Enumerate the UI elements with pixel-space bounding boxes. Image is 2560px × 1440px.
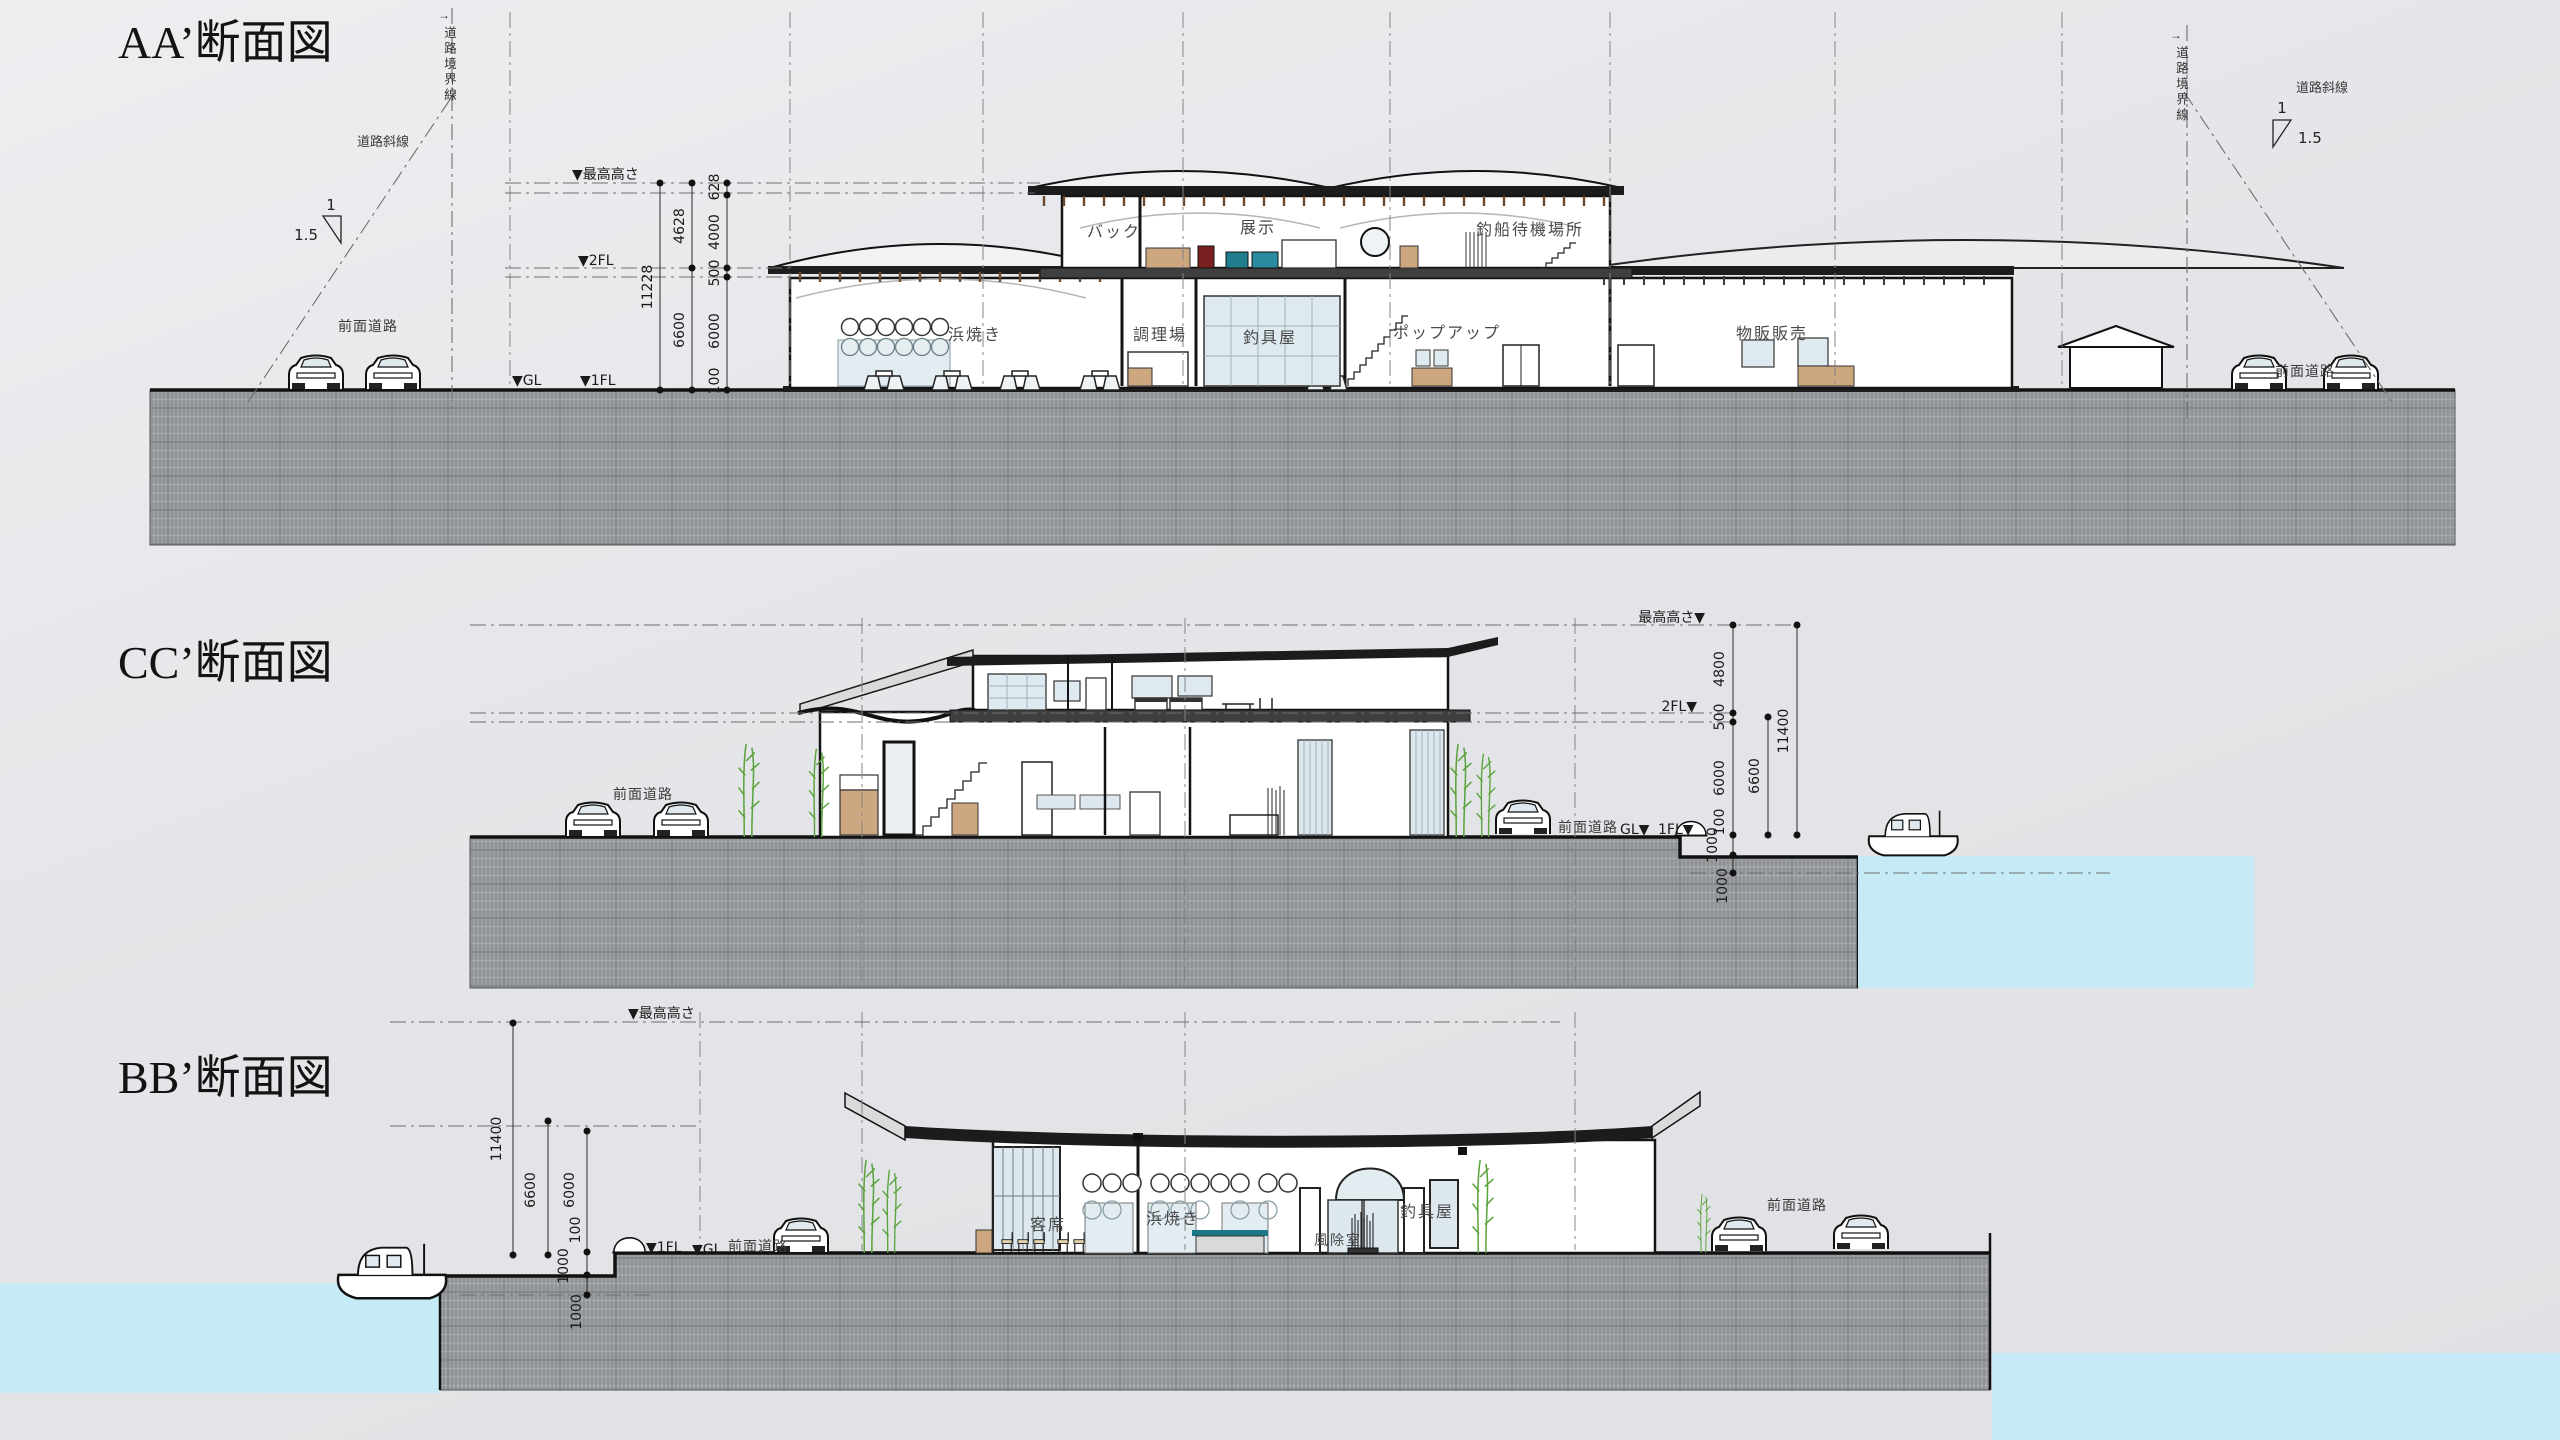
bb-kyakuseki-glazing bbox=[993, 1147, 1060, 1250]
aa-popup-window bbox=[1434, 350, 1448, 366]
aa-2fl-slab bbox=[1040, 268, 1632, 278]
aa-level-1fl: ▼1FL bbox=[580, 373, 616, 389]
tree-icon bbox=[859, 1160, 880, 1253]
aa-dim-628: 628 bbox=[707, 174, 723, 201]
aa-2f-display-case bbox=[1252, 252, 1278, 268]
bb-ground bbox=[440, 1253, 1990, 1390]
cc-road-label-right: 前面道路 bbox=[1558, 819, 1618, 836]
bb-section: 11400 6600 6000 100 1000 1000 BB’断面図 ▼最高… bbox=[0, 1005, 2560, 1440]
aa-ground bbox=[150, 390, 2455, 545]
aa-2f-red-cabinet bbox=[1198, 246, 1214, 268]
bb-roof-joint bbox=[1133, 1133, 1143, 1141]
car-icon bbox=[566, 803, 620, 837]
aa-retail-counter bbox=[1798, 366, 1854, 386]
aa-title: AA’断面図 bbox=[118, 17, 333, 68]
aa-dim-100: 100 bbox=[707, 368, 723, 395]
aa-slope-rise-right: 1 bbox=[2277, 99, 2287, 117]
tree-icon bbox=[1451, 744, 1472, 837]
aa-right-fascia bbox=[1586, 266, 2014, 275]
aa-room-chourijou: 調理場 bbox=[1133, 325, 1187, 344]
cc-dim-6600: 6600 bbox=[1747, 758, 1763, 794]
bb-roof-tip-right bbox=[1652, 1092, 1700, 1138]
bb-counter-top bbox=[1192, 1230, 1268, 1236]
cc-dim-1000a: 1000 bbox=[1705, 827, 1721, 863]
cc-title: CC’断面図 bbox=[118, 637, 333, 688]
cc-dim-1000b: 1000 bbox=[1715, 868, 1731, 904]
bb-road-label-left: 前面道路 bbox=[728, 1238, 788, 1255]
cc-ground bbox=[470, 837, 1858, 988]
aa-left-dome-roof bbox=[770, 244, 1112, 268]
aa-room-back: バック bbox=[1087, 222, 1141, 241]
aa-slope-run-left: 1.5 bbox=[294, 226, 318, 244]
tree-icon bbox=[1477, 754, 1496, 837]
aa-dim-4000: 4000 bbox=[707, 214, 723, 250]
bb-room-hamayaki: 浜焼き bbox=[1146, 1209, 1200, 1228]
bb-water-left bbox=[0, 1283, 440, 1393]
tree-icon bbox=[883, 1170, 902, 1253]
aa-retail-window bbox=[1742, 340, 1774, 367]
cc-dim-11400: 11400 bbox=[1776, 709, 1792, 754]
cc-road-label-left: 前面道路 bbox=[613, 786, 673, 803]
aa-dim-total: 11228 bbox=[640, 265, 656, 310]
cc-section: 4800 500 6000 100 1000 1000 6600 11400 C… bbox=[118, 609, 2254, 988]
aa-popup-counter bbox=[1412, 368, 1452, 386]
bb-roof-tip-left bbox=[845, 1093, 905, 1140]
boat-icon bbox=[1869, 811, 1958, 856]
bb-water-right bbox=[1992, 1353, 2560, 1440]
bb-dim-6000: 6000 bbox=[562, 1172, 578, 1208]
aa-small-hut bbox=[2058, 326, 2174, 388]
bb-dim-1000a: 1000 bbox=[556, 1248, 572, 1284]
bb-room-fujoshitsu: 風除室 bbox=[1314, 1232, 1362, 1249]
cc-dim-4800: 4800 bbox=[1712, 651, 1728, 687]
aa-dim-upper: 4628 bbox=[672, 208, 688, 244]
aa-2f-exhibit-box bbox=[1282, 240, 1336, 268]
aa-dimensions: 11228 4628 6600 628 4000 500 6000 100 bbox=[640, 174, 731, 395]
car-icon bbox=[366, 356, 420, 390]
cc-dim-6000: 6000 bbox=[1712, 760, 1728, 796]
aa-room-tenji: 展示 bbox=[1240, 218, 1276, 237]
car-icon bbox=[1834, 1216, 1888, 1250]
bb-level-1fl: ▼1FL bbox=[646, 1240, 682, 1256]
cc-dim-500: 500 bbox=[1712, 704, 1728, 731]
aa-roof-fascia bbox=[1028, 186, 1624, 195]
aa-road-label-left: 前面道路 bbox=[338, 318, 398, 335]
aa-slant-label-right: 道路斜線 bbox=[2296, 80, 2348, 96]
aa-dim-lower: 6600 bbox=[672, 312, 688, 348]
aa-right-dome-roof bbox=[1588, 240, 2344, 268]
bb-dim-6600: 6600 bbox=[523, 1172, 539, 1208]
aa-slope-run-right: 1.5 bbox=[2298, 129, 2322, 147]
aa-roof-vault-left bbox=[1030, 171, 1330, 188]
aa-popup-window bbox=[1416, 350, 1430, 366]
cc-level-2fl: 2FL▼ bbox=[1661, 699, 1697, 715]
aa-roof-vault-right bbox=[1330, 171, 1622, 188]
bb-road-label-right: 前面道路 bbox=[1767, 1197, 1827, 1214]
tree-icon bbox=[739, 744, 760, 837]
aa-level-max: ▼最高高さ bbox=[572, 166, 639, 183]
bb-room-kyakuseki: 客席 bbox=[1030, 1215, 1066, 1234]
bb-dim-100: 100 bbox=[568, 1217, 584, 1244]
aa-level-2fl: ▼2FL bbox=[578, 253, 614, 269]
section-drawing-canvas: 11228 4628 6600 628 4000 500 6000 100 AA… bbox=[0, 0, 2560, 1440]
bb-roof-joint bbox=[1458, 1147, 1467, 1155]
cc-water bbox=[1858, 856, 2254, 988]
aa-room-machiba: 釣船待機場所 bbox=[1476, 220, 1584, 239]
bb-title: BB’断面図 bbox=[118, 1052, 333, 1103]
aa-room-hamayaki: 浜焼き bbox=[948, 325, 1002, 344]
cc-2fl-slab bbox=[950, 710, 1470, 722]
dome-tent-icon bbox=[612, 1238, 646, 1253]
aa-slope-rise-left: 1 bbox=[326, 196, 336, 214]
car-icon bbox=[1496, 801, 1550, 835]
aa-2f-stair-base bbox=[1400, 246, 1418, 268]
car-icon bbox=[1712, 1218, 1766, 1252]
boat-icon bbox=[338, 1244, 446, 1298]
car-icon bbox=[654, 803, 708, 837]
aa-road-label-right: 前面道路 bbox=[2275, 363, 2335, 380]
car-icon bbox=[289, 356, 343, 390]
aa-dim-500: 500 bbox=[707, 260, 723, 287]
aa-boundary-arrow-right: → bbox=[2170, 28, 2182, 42]
cc-level-1fl: 1FL▼ bbox=[1658, 822, 1694, 838]
aa-section: 11228 4628 6600 628 4000 500 6000 100 AA… bbox=[118, 8, 2455, 545]
cc-building bbox=[798, 637, 1498, 837]
aa-slant-label-left: 道路斜線 bbox=[357, 134, 409, 150]
aa-boundary-arrow-left: → bbox=[438, 8, 450, 22]
bb-dim-11400: 11400 bbox=[489, 1117, 505, 1162]
aa-dim-6000: 6000 bbox=[707, 313, 723, 349]
aa-level-gl: ▼GL bbox=[512, 373, 542, 389]
bb-dim-1000b: 1000 bbox=[569, 1294, 585, 1330]
bb-dim-ticks bbox=[510, 1020, 591, 1299]
cc-level-gl: GL▼ bbox=[1620, 822, 1650, 838]
bb-level-max: ▼最高高さ bbox=[628, 1005, 695, 1022]
bb-tan-box bbox=[976, 1230, 992, 1253]
aa-boundary-label-left: 道路境界線 bbox=[440, 26, 459, 104]
aa-room-tsuriguya: 釣具屋 bbox=[1243, 328, 1297, 347]
bb-building bbox=[845, 1092, 1700, 1253]
tree-icon bbox=[1697, 1194, 1710, 1253]
aa-room-buppan: 物販販売 bbox=[1736, 324, 1808, 343]
cc-level-max: 最高高さ▼ bbox=[1638, 609, 1705, 626]
aa-room-popup: ポップアップ bbox=[1393, 323, 1501, 342]
bb-counter bbox=[1196, 1236, 1264, 1253]
aa-kitchen-cabinet bbox=[1128, 368, 1152, 386]
bb-level-gl: ▼GL bbox=[692, 1242, 722, 1258]
aa-boundary-label-right: 道路境界線 bbox=[2172, 46, 2191, 124]
aa-2f-display-case bbox=[1226, 252, 1248, 268]
bb-room-tsuriguya: 釣具屋 bbox=[1400, 1202, 1454, 1221]
aa-retail-door bbox=[1618, 345, 1654, 386]
aa-2f-porthole-window bbox=[1361, 228, 1389, 256]
